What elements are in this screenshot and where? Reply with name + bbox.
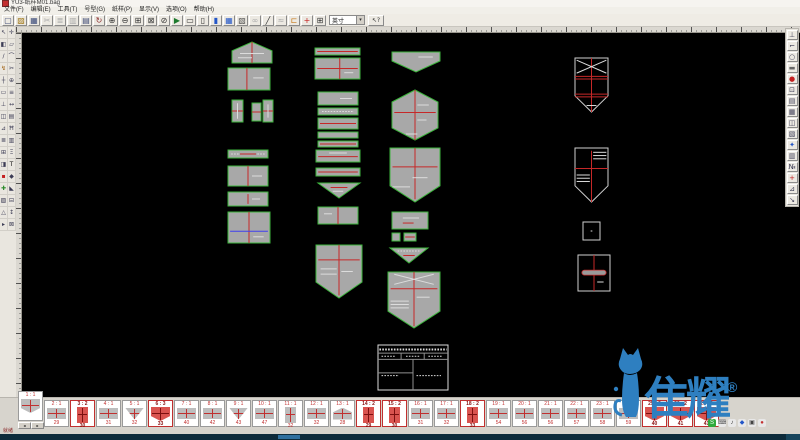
piece-thumbnail: [255, 408, 274, 419]
card-piece-thumb: [435, 407, 458, 420]
thumb-center-line: [368, 408, 369, 422]
card-piece-number: 31: [106, 420, 112, 426]
window-title: YU3-纸样M01.bag: [11, 0, 60, 7]
pattern-card-15[interactable]: 15 : 230: [382, 400, 407, 427]
left-tool-11-icon[interactable]: ≡: [8, 87, 16, 99]
card-piece-thumb: [643, 407, 666, 421]
left-tool-23-icon[interactable]: T: [8, 159, 16, 171]
copy-button[interactable]: ≣: [54, 15, 66, 26]
menu-item-4[interactable]: 纸样(P): [112, 7, 132, 14]
pattern-canvas[interactable]: [22, 33, 800, 397]
pattern-card-6[interactable]: 6 : 333: [148, 400, 173, 427]
card-piece-thumb: [175, 407, 198, 420]
zoom-out-button[interactable]: ⊖: [119, 15, 131, 26]
right-tool-7-icon[interactable]: ▦: [787, 107, 798, 117]
left-tool-2-icon[interactable]: ◧: [0, 39, 8, 51]
view-outline-button[interactable]: ▯: [197, 15, 209, 26]
left-tool-15-icon[interactable]: ▤: [8, 111, 16, 123]
refresh-button[interactable]: ↻: [93, 15, 105, 26]
right-tool-5-icon[interactable]: ⊡: [787, 85, 798, 95]
chevron-down-icon[interactable]: ▾: [356, 16, 364, 24]
piece-thumbnail: [411, 408, 430, 419]
pattern-card-21[interactable]: 21 : 156: [538, 400, 563, 427]
piece-thumbnail: [203, 408, 222, 419]
show-fill-button[interactable]: ▮: [210, 15, 222, 26]
tray-icon-0[interactable]: S: [708, 419, 716, 427]
left-tool-29-icon[interactable]: ⊟: [8, 195, 16, 207]
card-piece-thumb: [383, 407, 406, 423]
zoom-in-button[interactable]: ⊕: [106, 15, 118, 26]
pattern-card-4[interactable]: 4 : 131: [96, 400, 121, 427]
thumb-center-line: [82, 408, 83, 422]
pattern-card-24[interactable]: 24 : 159: [616, 400, 641, 427]
card-piece-thumb: [539, 407, 562, 420]
main-toolbar: ▢▨▦✂≣▥▤↻⊕⊖⊞⊠⊘▶▭▯▮▦▧∞╱≈⊏+⊞英寸▾↖?: [0, 14, 800, 27]
piece-pocket-1[interactable]: [392, 212, 428, 229]
pattern-card-8[interactable]: 8 : 142: [200, 400, 225, 427]
pattern-card-13[interactable]: 13 : 128: [330, 400, 355, 427]
piece-thumbnail: [645, 407, 664, 421]
taskbar-active-app[interactable]: [278, 435, 300, 439]
left-gutter: [0, 231, 16, 397]
tray-icon-1[interactable]: ⌨: [718, 419, 726, 427]
piece-panel-5[interactable]: [318, 92, 358, 105]
card-piece-thumb: [279, 407, 302, 423]
thumb-center-line: [498, 409, 499, 418]
card-piece-number: 54: [496, 420, 502, 426]
pattern-card-9[interactable]: 9 : 143: [226, 400, 251, 427]
pattern-card-10[interactable]: 10 : 147: [252, 400, 277, 427]
card-piece-thumb: [591, 407, 614, 420]
left-tool-3-icon[interactable]: ▱: [8, 39, 16, 51]
right-tool-9-icon[interactable]: ▧: [787, 129, 798, 139]
save-button[interactable]: ▦: [28, 15, 40, 26]
left-tool-21-icon[interactable]: Ξ: [8, 147, 16, 159]
right-tool-11-icon[interactable]: ▥: [787, 151, 798, 161]
left-tool-16-icon[interactable]: ⊿: [0, 123, 8, 135]
thumb-center-line: [316, 409, 317, 418]
piece-small-1[interactable]: [392, 233, 400, 241]
piece-strip-5[interactable]: [318, 132, 358, 138]
piece-band-2[interactable]: [316, 150, 360, 162]
zoom-window-button[interactable]: ⊞: [132, 15, 144, 26]
piece-front-upper[interactable]: [392, 90, 438, 140]
piece-thumbnail: [437, 408, 456, 419]
pattern-card-22[interactable]: 22 : 157: [564, 400, 589, 427]
piece-back-lower[interactable]: [316, 245, 362, 298]
thumb-center-line: [680, 408, 681, 420]
piece-window-button[interactable]: ▧: [236, 15, 248, 26]
piece-thumbnail: [307, 408, 326, 419]
thumb-center-line: [56, 409, 57, 418]
left-tool-palette: ↖✛◧▱∕⌒↯✂┼⊕▭≡⊥↔◫▤⊿Ħ≣▥⊞Ξ◨T▪◆✚◣▨⊟△↕▸⊠: [0, 27, 16, 231]
card-piece-thumb: [487, 407, 510, 420]
piece-outline-front[interactable]: [575, 58, 608, 112]
thumb-center-line: [602, 409, 603, 418]
piece-front-lower[interactable]: [390, 148, 440, 202]
left-tool-32-icon[interactable]: ▸: [0, 219, 8, 231]
left-tool-24-icon[interactable]: ▪: [0, 171, 8, 183]
print-button[interactable]: ▤: [80, 15, 92, 26]
title-block[interactable]: [378, 345, 448, 390]
piece-front-yoke[interactable]: [232, 42, 272, 63]
piece-band-1[interactable]: [228, 68, 270, 90]
pattern-canvas-drawing[interactable]: [22, 33, 800, 397]
thumb-center-line: [238, 409, 239, 419]
piece-thumbnail: [77, 407, 88, 423]
piece-thumbnail: [229, 408, 248, 420]
size-table-button[interactable]: ⊞: [314, 15, 326, 26]
card-piece-number: 56: [548, 420, 554, 426]
card-piece-thumb: [331, 407, 354, 420]
right-tool-0-icon[interactable]: ⊥: [787, 30, 798, 40]
zoom-prev-button[interactable]: ⊘: [158, 15, 170, 26]
menu-item-3[interactable]: 号型(G): [84, 7, 105, 14]
pattern-card-3[interactable]: 3 : 230: [70, 400, 95, 427]
piece-panel-2[interactable]: [228, 192, 268, 206]
pattern-card-16[interactable]: 16 : 131: [408, 400, 433, 427]
line-tool-button[interactable]: ╱: [262, 15, 274, 26]
card-piece-thumb: [123, 407, 146, 420]
left-tool-1-icon[interactable]: ✛: [8, 27, 16, 39]
thumb-center-line: [30, 400, 31, 412]
left-tool-8-icon[interactable]: ┼: [0, 75, 8, 87]
left-tool-28-icon[interactable]: ▨: [0, 195, 8, 207]
link-button[interactable]: ∞: [249, 15, 261, 26]
thumb-center-line: [264, 409, 265, 418]
card-piece-number: 47: [262, 420, 268, 426]
right-tool-15-icon[interactable]: ↘: [787, 195, 798, 205]
cut-button[interactable]: ✂: [41, 15, 53, 26]
show-grid-button[interactable]: ▦: [223, 15, 235, 26]
card-piece-number: 42: [210, 420, 216, 426]
card-piece-thumb: [513, 407, 536, 420]
thumb-center-line: [472, 408, 473, 422]
left-tool-30-icon[interactable]: △: [0, 207, 8, 219]
card-piece-thumb: [253, 407, 276, 420]
title-bar: YU3-纸样M01.bag: [0, 0, 800, 7]
thumb-center-line: [706, 408, 707, 420]
tray-icon-2[interactable]: ♪: [728, 419, 736, 427]
menu-item-1[interactable]: 编辑(E): [31, 7, 51, 14]
card-piece-number: 40: [184, 420, 190, 426]
thumb-center-line: [108, 409, 109, 418]
thumbnail-scrollbar: ◂ ▸: [18, 422, 44, 429]
right-tool-13-icon[interactable]: +: [787, 173, 798, 183]
right-tool-palette: ⊥⌐○▬●⊡▤▦◫▧✦▥№+⊿↘: [785, 28, 799, 207]
pattern-card-20[interactable]: 20 : 156: [512, 400, 537, 427]
thumb-center-line: [446, 409, 447, 418]
scroll-left-button[interactable]: ◂: [18, 422, 31, 429]
left-tool-4-icon[interactable]: ∕: [0, 51, 8, 63]
piece-strip-4[interactable]: [318, 118, 358, 129]
pattern-card-17[interactable]: 17 : 132: [434, 400, 459, 427]
thumb-center-line: [212, 409, 213, 418]
piece-band-3[interactable]: [316, 168, 360, 176]
piece-thumbnail: [363, 407, 374, 423]
menu-bar: 文件(F)编辑(E)工具(T)号型(G)纸样(P)显示(V)选项(O)帮助(H): [0, 7, 800, 14]
thumb-center-line: [186, 409, 187, 418]
card-piece-thumb: [669, 407, 692, 421]
left-tool-6-icon[interactable]: ↯: [0, 63, 8, 75]
left-tool-7-icon[interactable]: ✂: [8, 63, 16, 75]
thumb-center-line: [550, 409, 551, 418]
zoom-all-button[interactable]: ⊠: [145, 15, 157, 26]
piece-thumbnail: [593, 408, 612, 419]
piece-strip-6[interactable]: [318, 141, 358, 147]
open-button[interactable]: ▨: [15, 15, 27, 26]
pattern-card-list: 1 : 12 : 1293 : 2304 : 1315 : 1326 : 333…: [18, 400, 719, 427]
context-help-button[interactable]: ↖?: [368, 15, 384, 26]
card-piece-number: 41: [678, 421, 684, 427]
piece-dart-1[interactable]: [318, 183, 360, 198]
piece-thumbnail: [515, 408, 534, 419]
piece-strip-3[interactable]: [318, 108, 358, 115]
piece-outline-cuff[interactable]: [578, 255, 610, 291]
piece-tab-1[interactable]: [232, 100, 243, 122]
thumb-center-line: [576, 409, 577, 418]
card-piece-number: 32: [132, 420, 138, 426]
left-tool-12-icon[interactable]: ⊥: [0, 99, 8, 111]
card-piece-number: 32: [444, 420, 450, 426]
card-piece-thumb: [45, 407, 68, 420]
piece-thumbnail: [177, 408, 196, 419]
piece-panel-1[interactable]: [228, 166, 268, 186]
tray-icon-4[interactable]: ▣: [748, 419, 756, 427]
add-point-button[interactable]: +: [301, 15, 313, 26]
left-tool-9-icon[interactable]: ⊕: [8, 75, 16, 87]
pattern-card-18[interactable]: 18 : 233: [460, 400, 485, 427]
tray-icon-3[interactable]: ◆: [738, 419, 746, 427]
new-button[interactable]: ▢: [2, 15, 14, 26]
left-tool-25-icon[interactable]: ◆: [8, 171, 16, 183]
card-piece-number: 56: [522, 420, 528, 426]
piece-dart-2[interactable]: [390, 248, 428, 263]
piece-panel-6[interactable]: [318, 207, 358, 224]
card-piece-thumb: [357, 407, 380, 423]
left-tool-0-icon[interactable]: ↖: [0, 27, 8, 39]
pattern-card-25[interactable]: 25 : 240: [642, 400, 667, 427]
thumbnail-strip: 1 : 12 : 1293 : 2304 : 1315 : 1326 : 333…: [0, 397, 800, 429]
worksheet-button[interactable]: ⊏: [288, 15, 300, 26]
left-tool-20-icon[interactable]: ⊞: [0, 147, 8, 159]
left-tool-27-icon[interactable]: ◣: [8, 183, 16, 195]
piece-thumbnail: [125, 408, 144, 420]
right-tool-8-icon[interactable]: ◫: [787, 118, 798, 128]
card-piece-number: 29: [54, 420, 60, 426]
card-piece-number: 40: [652, 421, 658, 427]
right-tool-6-icon[interactable]: ▤: [787, 96, 798, 106]
thumb-center-line: [628, 409, 629, 418]
piece-thumbnail: [567, 408, 586, 419]
menu-item-7[interactable]: 帮助(H): [194, 7, 214, 14]
right-tool-14-icon[interactable]: ⊿: [787, 184, 798, 194]
card-piece-thumb: [565, 407, 588, 420]
pattern-card-5[interactable]: 5 : 132: [122, 400, 147, 427]
unit-select-value: 英寸: [330, 16, 344, 25]
pattern-card-11[interactable]: 11 : 132: [278, 400, 303, 427]
card-piece-thumb: [305, 407, 328, 420]
right-tool-10-icon[interactable]: ✦: [787, 140, 798, 150]
pattern-card-19[interactable]: 19 : 154: [486, 400, 511, 427]
left-tool-22-icon[interactable]: ◨: [0, 159, 8, 171]
tray-icon-5[interactable]: ●: [758, 419, 766, 427]
piece-tab-2[interactable]: [252, 103, 261, 121]
right-tool-12-icon[interactable]: №: [787, 162, 798, 172]
piece-thumbnail: [21, 399, 40, 413]
piece-collar[interactable]: [392, 52, 440, 72]
left-tool-31-icon[interactable]: ↕: [8, 207, 16, 219]
system-tray: S⌨♪◆▣●: [708, 419, 766, 427]
card-piece-number: 32: [314, 420, 320, 426]
card-piece-number: 57: [574, 420, 580, 426]
app-icon: [2, 0, 9, 7]
view-structure-button[interactable]: ▭: [184, 15, 196, 26]
piece-small-2[interactable]: [404, 233, 416, 241]
piece-thumbnail: [151, 407, 170, 421]
piece-outline-square[interactable]: [583, 222, 600, 240]
piece-thumbnail: [467, 407, 478, 423]
piece-back-panel[interactable]: [388, 272, 440, 328]
scroll-right-button[interactable]: ▸: [31, 422, 44, 429]
card-piece-number: 58: [600, 420, 606, 426]
thumb-center-line: [160, 408, 161, 420]
piece-strip-1[interactable]: [228, 150, 268, 158]
menu-item-2[interactable]: 工具(T): [58, 7, 78, 14]
left-tool-26-icon[interactable]: ✚: [0, 183, 8, 195]
piece-thumbnail: [541, 408, 560, 419]
thumb-center-line: [420, 409, 421, 418]
piece-thumbnail: [285, 407, 296, 423]
card-piece-number: 33: [158, 421, 164, 427]
piece-thumbnail: [333, 408, 352, 420]
menu-item-5[interactable]: 显示(V): [139, 7, 159, 14]
thumb-center-line: [654, 408, 655, 420]
application-window: YU3-纸样M01.bag 文件(F)编辑(E)工具(T)号型(G)纸样(P)显…: [0, 0, 800, 440]
pattern-card-7[interactable]: 7 : 140: [174, 400, 199, 427]
piece-thumbnail: [47, 408, 66, 419]
thumb-center-line: [290, 408, 291, 422]
measure-button[interactable]: ≈: [275, 15, 287, 26]
card-piece-number: 59: [626, 420, 632, 426]
thumb-center-line: [134, 409, 135, 419]
taskbar[interactable]: [0, 434, 800, 440]
paste-button[interactable]: ▥: [67, 15, 79, 26]
piece-thumbnail: [99, 408, 118, 419]
card-piece-number: 28: [340, 420, 346, 426]
piece-tab-3[interactable]: [263, 100, 273, 122]
pattern-card-14[interactable]: 14 : 229: [356, 400, 381, 427]
card-piece-number: 43: [236, 420, 242, 426]
left-tool-13-icon[interactable]: ↔: [8, 99, 16, 111]
left-tool-33-icon[interactable]: ⊠: [8, 219, 16, 231]
left-tool-10-icon[interactable]: ▭: [0, 87, 8, 99]
menu-item-6[interactable]: 选项(O): [166, 7, 187, 14]
taskbar-clock-area[interactable]: [786, 434, 800, 440]
left-tool-18-icon[interactable]: ≣: [0, 135, 8, 147]
left-tool-17-icon[interactable]: Ħ: [8, 123, 16, 135]
pattern-card-2[interactable]: 2 : 129: [44, 400, 69, 427]
right-tool-1-icon[interactable]: ⌐: [787, 41, 798, 51]
thumb-center-line: [342, 409, 343, 419]
pattern-card-1[interactable]: 1 : 1: [18, 391, 43, 421]
card-piece-thumb: [97, 407, 120, 420]
left-tool-5-icon[interactable]: ⌒: [8, 51, 16, 63]
thumb-center-line: [524, 409, 525, 418]
card-piece-number: 31: [418, 420, 424, 426]
piece-panel-4[interactable]: [315, 58, 360, 79]
pattern-card-23[interactable]: 23 : 158: [590, 400, 615, 427]
piece-outline-back[interactable]: [575, 148, 608, 202]
right-tool-4-icon[interactable]: ●: [787, 74, 798, 84]
piece-thumbnail: [489, 408, 508, 419]
pattern-card-26[interactable]: 26 : 241: [668, 400, 693, 427]
right-tool-2-icon[interactable]: ○: [787, 52, 798, 62]
piece-thumbnail: [619, 408, 638, 419]
card-piece-thumb: [409, 407, 432, 420]
card-piece-thumb: [201, 407, 224, 420]
card-piece-thumb: [461, 407, 484, 423]
thumb-center-line: [394, 408, 395, 422]
piece-strip-2[interactable]: [315, 48, 360, 55]
menu-item-0[interactable]: 文件(F): [4, 7, 24, 14]
piece-thumbnail: [671, 407, 690, 421]
card-piece-thumb: [71, 407, 94, 423]
card-piece-thumb: [617, 407, 640, 420]
right-tool-3-icon[interactable]: ▬: [787, 63, 798, 73]
left-tool-19-icon[interactable]: ▥: [8, 135, 16, 147]
card-piece-thumb: [19, 398, 42, 414]
unit-select[interactable]: 英寸▾: [329, 15, 365, 25]
pan-button[interactable]: ▶: [171, 15, 183, 26]
piece-thumbnail: [389, 407, 400, 423]
piece-panel-3[interactable]: [228, 212, 270, 243]
card-piece-thumb: [227, 407, 250, 420]
pattern-card-12[interactable]: 12 : 132: [304, 400, 329, 427]
card-piece-thumb: [149, 407, 172, 421]
left-tool-14-icon[interactable]: ◫: [0, 111, 8, 123]
